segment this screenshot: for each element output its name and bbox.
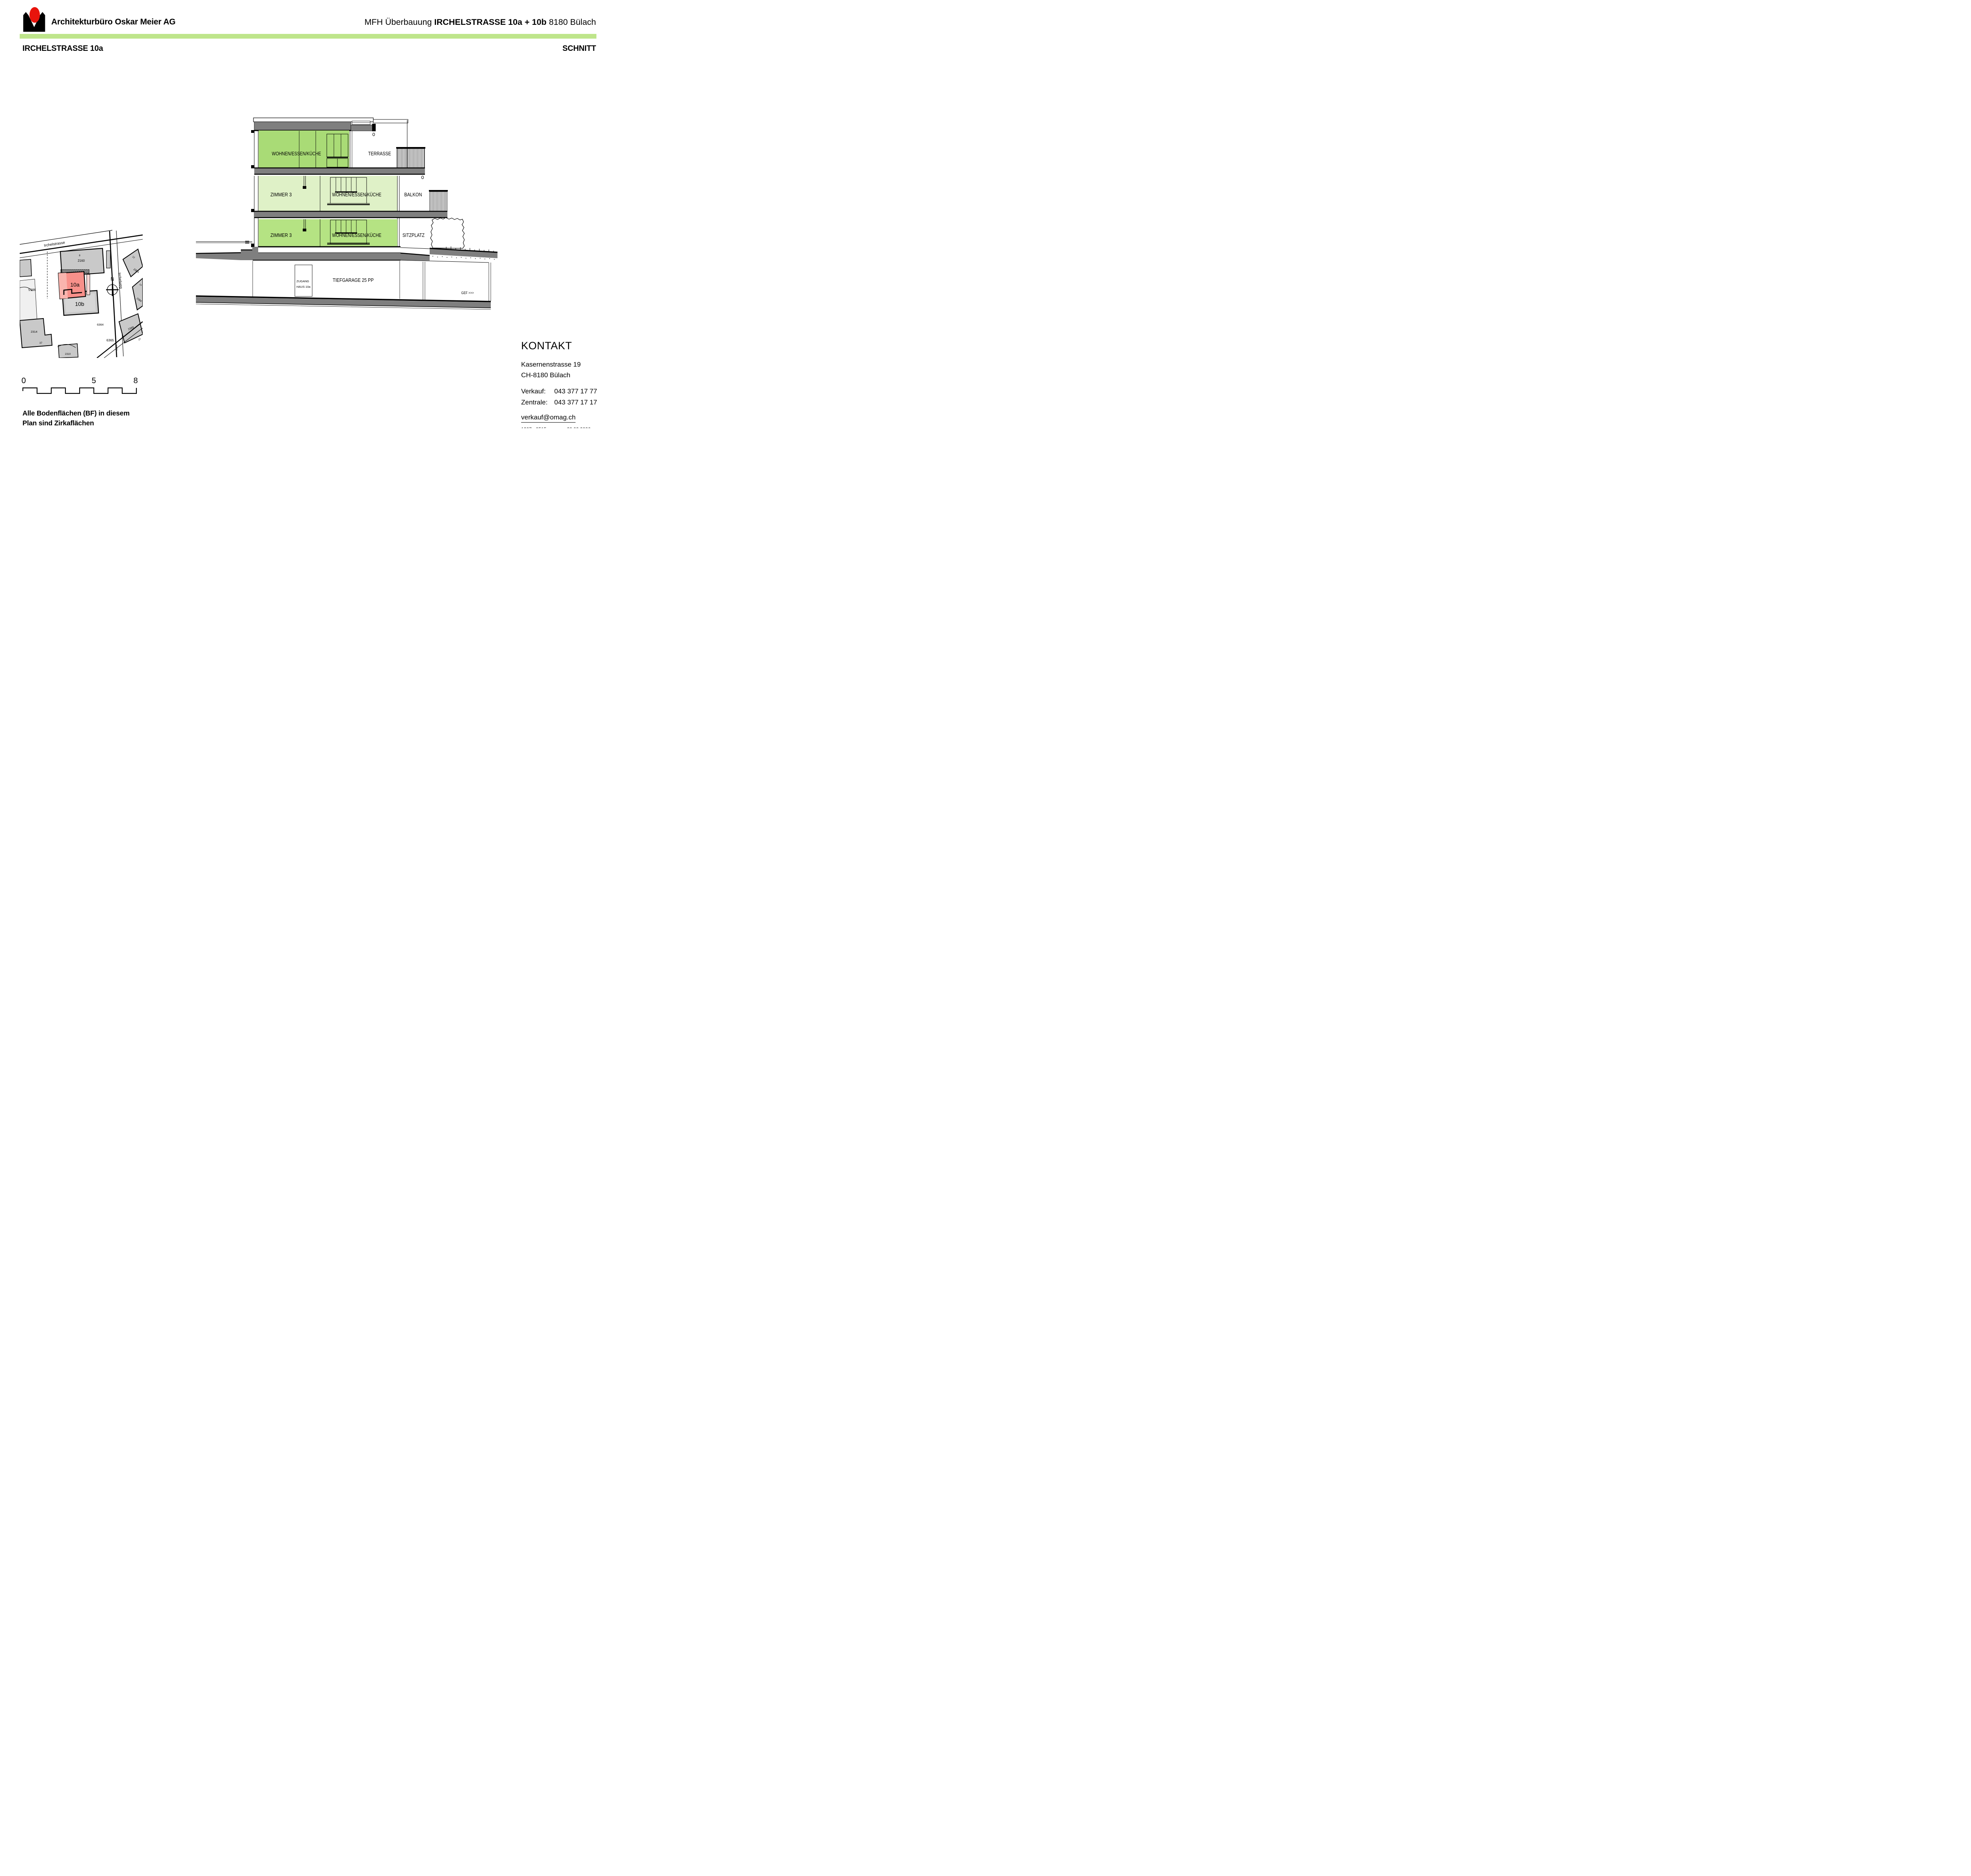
sheet-type: SCHNITT (563, 44, 596, 53)
contact-email-link[interactable]: verkauf@omag.ch (521, 414, 576, 423)
cross-section-drawing: WOHNEN/ESSEN/KÜCHE TERRASSE (193, 116, 505, 313)
terrain (430, 218, 497, 260)
scale-0: 0 (21, 376, 26, 385)
svg-text:N: N (111, 276, 114, 282)
contact-phone-sales: Verkauf: 043 377 17 77 (521, 386, 606, 397)
contact-phone-central: Zentrale: 043 377 17 17 (521, 397, 606, 408)
plan-sheet: Architekturbüro Oskar Meier AG MFH Überb… (0, 0, 610, 428)
doc-number: 1207 - 9515 (521, 427, 546, 428)
scale-5: 5 (91, 376, 96, 385)
label-10b: 10b (75, 301, 84, 307)
label-balcony: BALKON (404, 192, 422, 197)
svg-text:5166: 5166 (28, 288, 36, 292)
header-divider (20, 34, 596, 39)
label-sitzplatz: SITZPLATZ (402, 232, 425, 238)
company-name: Architekturbüro Oskar Meier AG (51, 17, 175, 27)
label-garage: TIEFGARAGE 25 PP (333, 277, 374, 283)
note-line2: Plan sind Zirkaflächen (22, 418, 130, 428)
architect-logo-icon (22, 3, 48, 35)
label-slope: GEF >>> (461, 291, 474, 295)
phone-sales-label: Verkauf: (521, 386, 554, 397)
contact-city: CH-8180 Bülach (521, 370, 606, 380)
note-line1: Alle Bodenflächen (BF) in diesem (22, 408, 130, 418)
project-title: MFH ÜberbauungIRCHELSTRASSE 10a + 10b818… (365, 17, 596, 27)
building-10a: 10a (58, 272, 90, 299)
svg-text:27: 27 (138, 338, 142, 341)
phone-central-number: 043 377 17 17 (554, 397, 597, 408)
label-upper-room1: ZIMMER 3 (270, 192, 292, 197)
svg-text:2314: 2314 (31, 330, 37, 333)
label-ground-room2: WOHNEN/ESSEN/KÜCHE (332, 232, 382, 238)
phone-sales-number: 043 377 17 77 (554, 386, 597, 397)
contact-street: Kasernenstrasse 19 (521, 359, 606, 370)
sheet-title: IRCHELSTRASSE 10a (22, 44, 103, 53)
plan-note: Alle Bodenflächen (BF) in diesem Plan si… (22, 408, 130, 428)
scale-bar: 0 5 8 (20, 375, 139, 398)
svg-text:37: 37 (39, 342, 43, 345)
doc-date: 20.02.2026 (567, 427, 591, 428)
attic-level: WOHNEN/ESSEN/KÜCHE TERRASSE (251, 130, 425, 168)
phone-central-label: Zentrale: (521, 397, 554, 408)
north-arrow-icon: N (106, 276, 119, 296)
label-terrace: TERRASSE (368, 151, 391, 156)
contact-address: Kasernenstrasse 19 CH-8180 Bülach (521, 359, 606, 380)
svg-text:2310: 2310 (65, 353, 71, 356)
project-city: 8180 Bülach (549, 17, 596, 27)
doc-info: 1207 - 9515 20.02.2026 (521, 427, 606, 428)
contact-block: KONTAKT Kasernenstrasse 19 CH-8180 Bülac… (521, 340, 606, 428)
label-attic-room: WOHNEN/ESSEN/KÜCHE (272, 151, 321, 156)
scale-8: 8 (133, 376, 138, 385)
site-plan: Irchelstrasse Irchelweg 5132 (20, 229, 143, 358)
svg-text:2160: 2160 (78, 259, 85, 263)
label-zugang2: HAUS 10a (296, 285, 311, 289)
svg-text:6364: 6364 (97, 323, 104, 326)
svg-text:6365: 6365 (106, 338, 114, 342)
terrace-railing (396, 147, 425, 149)
bush (430, 218, 464, 248)
label-zugang1: ZUGANG (296, 279, 309, 283)
label-upper-room2: WOHNEN/ESSEN/KÜCHE (332, 192, 382, 197)
street2-label: Irchelweg (117, 272, 123, 289)
label-ground-room1: ZIMMER 3 (270, 232, 292, 238)
balcony-railing (429, 190, 448, 192)
project-prefix: MFH Überbauung (365, 17, 432, 27)
contact-title: KONTAKT (521, 340, 606, 352)
ground-level: ZIMMER 3 WOHNEN/ESSEN/KÜCHE SITZPLATZ (251, 219, 430, 249)
project-name: IRCHELSTRASSE 10a + 10b (434, 17, 546, 27)
label-10a: 10a (70, 281, 80, 288)
